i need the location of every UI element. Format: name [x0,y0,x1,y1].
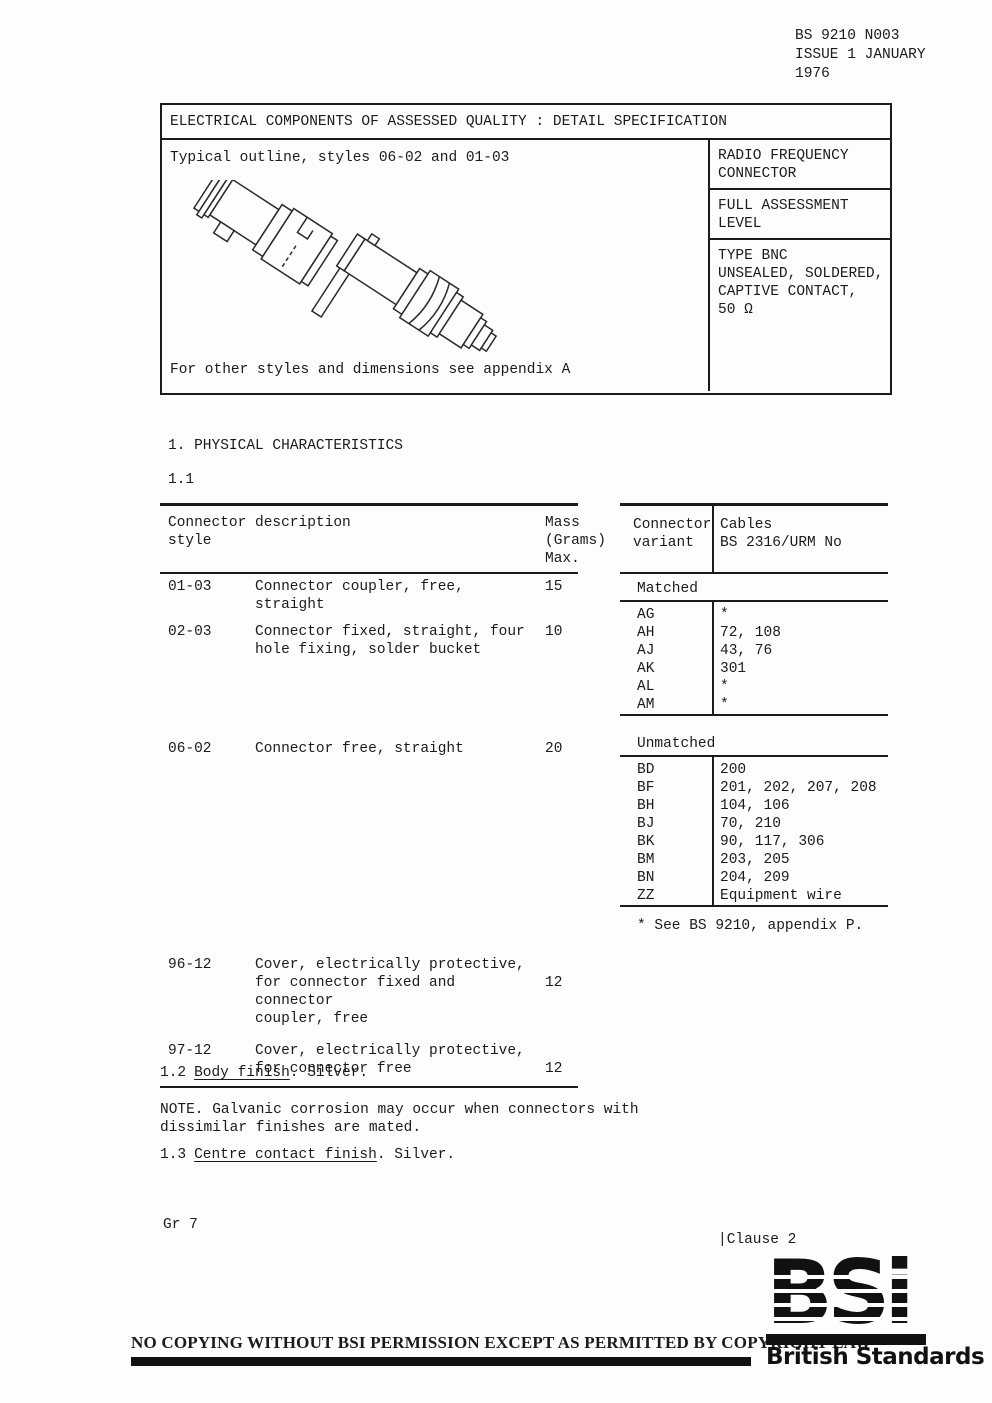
cable-row: AM * [620,696,888,714]
cable-table-footnote: * See BS 9210, appendix P. [620,917,888,935]
rule [620,572,888,574]
unmatched-rows: BD 200 BF 201, 202, 207, 208 BH 104, 106… [620,757,888,905]
variant-cell: AL [620,678,712,696]
col-header-connector-style: Connector style [168,514,255,568]
cable-row: ZZ Equipment wire [620,887,888,905]
variant-cell: BN [620,869,712,887]
cables-cell: 43, 76 [712,642,888,660]
cable-row: BJ 70, 210 [620,815,888,833]
variant-cell: BD [620,761,712,779]
cables-cell: 72, 108 [712,624,888,642]
variant-cell: AM [620,696,712,714]
bsi-logo-caption: British Standards [766,1348,948,1366]
spec-title-row: ELECTRICAL COMPONENTS OF ASSESSED QUALIT… [162,105,890,140]
doc-reference-block: BS 9210 N003 ISSUE 1 JANUARY 1976 [795,27,926,84]
mass-cell: 10 [541,623,578,659]
connector-style-cell: 02-03 [168,623,255,659]
clause-centre-contact-finish: 1.3Centre contact finish. Silver. [160,1146,455,1164]
rule [620,714,888,716]
description-cell: Connector coupler, free, straight [255,578,541,614]
doc-issue: ISSUE 1 JANUARY [795,46,926,65]
copyright-bar [131,1357,751,1366]
clause-value: . Silver. [377,1147,455,1163]
cables-cell: Equipment wire [712,887,888,905]
doc-year: 1976 [795,65,926,84]
side-cell-connector-family: RADIO FREQUENCY CONNECTOR [710,140,890,190]
mass-cell: 12 [541,974,578,1028]
cable-row: BM 203, 205 [620,851,888,869]
cables-cell: * [712,678,888,696]
description-cell: Connector fixed, straight, four hole fix… [255,623,541,659]
subsection-number: 1.1 [168,471,194,489]
mass-table: Connector style description Mass (Grams)… [160,503,578,1088]
variant-cell: AJ [620,642,712,660]
connector-style-cell: 06-02 [168,740,255,758]
cables-cell: 203, 205 [712,851,888,869]
cables-cell: 70, 210 [712,815,888,833]
side-cell-line: UNSEALED, SOLDERED, [718,265,890,283]
mass-cell: 15 [541,578,578,614]
section-heading: 1. PHYSICAL CHARACTERISTICS [168,437,403,455]
side-cell-line: RADIO FREQUENCY [718,147,890,165]
col-header-connector-variant: Connector variant [620,516,712,572]
description-cell: Cover, electrically protective, for conn… [255,956,541,1028]
variant-cell: AG [620,606,712,624]
cable-row: AJ 43, 76 [620,642,888,660]
col-header-description: description [255,514,541,568]
variant-cell: BJ [620,815,712,833]
cable-row: BD 200 [620,761,888,779]
cable-row: BK 90, 117, 306 [620,833,888,851]
description-cell: Connector free, straight [255,740,541,758]
cable-variant-table: Connector variant Cables BS 2316/URM No … [620,503,888,935]
unmatched-band-label: Unmatched [637,735,888,753]
clause-label: Centre contact finish [194,1147,377,1163]
bsi-logo: BSi British Standards [766,1259,948,1366]
mass-table-row: 96-12 Cover, electrically protective, fo… [160,956,578,1028]
cables-cell: 301 [712,660,888,678]
scanned-spec-page: BS 9210 N003 ISSUE 1 JANUARY 1976 ELECTR… [0,0,992,1403]
variant-cell: BK [620,833,712,851]
mass-table-row: 02-03 Connector fixed, straight, four ho… [160,623,578,659]
clause-body-finish: 1.2Body finish. Silver. [160,1064,368,1082]
connector-outline-drawing [162,180,708,390]
clause-value: . Silver. [290,1065,368,1081]
col-header-mass: Mass (Grams) Max. [541,514,606,568]
price-group: Gr 7 [163,1216,198,1234]
side-cell-assessment-level: FULL ASSESSMENT LEVEL [710,190,890,240]
side-cell-line: LEVEL [718,215,890,233]
side-cell-line: 50 Ω [718,301,890,319]
side-cell-line: FULL ASSESSMENT [718,197,890,215]
clause-label: Body finish [194,1065,290,1081]
mass-table-header: Connector style description Mass (Grams)… [160,506,578,568]
cable-table-header: Connector variant Cables BS 2316/URM No [620,506,888,572]
cable-row: BN 204, 209 [620,869,888,887]
mass-table-row: 06-02 Connector free, straight 20 [160,740,578,758]
cable-row: AH 72, 108 [620,624,888,642]
cable-row: AL * [620,678,888,696]
mass-cell: 12 [541,1060,578,1078]
side-cell-type: TYPE BNC UNSEALED, SOLDERED, CAPTIVE CON… [710,240,890,391]
cables-cell: 200 [712,761,888,779]
cables-cell: 104, 106 [712,797,888,815]
col-header-cables: Cables BS 2316/URM No [712,516,888,572]
cable-row: BF 201, 202, 207, 208 [620,779,888,797]
cables-cell: * [712,606,888,624]
mass-table-row: 01-03 Connector coupler, free, straight … [160,578,578,614]
cables-cell: 204, 209 [712,869,888,887]
clause-number: 1.2 [160,1065,186,1081]
variant-cell: ZZ [620,887,712,905]
mass-cell: 20 [541,740,578,758]
spec-header-table: ELECTRICAL COMPONENTS OF ASSESSED QUALIT… [160,103,892,395]
connector-style-cell: 01-03 [168,578,255,614]
galvanic-corrosion-note: NOTE. Galvanic corrosion may occur when … [160,1101,639,1137]
side-cell-line: CONNECTOR [718,165,890,183]
variant-cell: AH [620,624,712,642]
cables-cell: 90, 117, 306 [712,833,888,851]
rule [160,572,578,574]
connector-style-cell: 96-12 [168,956,255,1028]
outline-cell: Typical outline, styles 06-02 and 01-03 [162,140,710,391]
spec-title: ELECTRICAL COMPONENTS OF ASSESSED QUALIT… [170,114,727,130]
cables-cell: 201, 202, 207, 208 [712,779,888,797]
copyright-notice: NO COPYING WITHOUT BSI PERMISSION EXCEPT… [131,1334,751,1352]
variant-cell: BM [620,851,712,869]
bsi-logo-stripes [766,1265,948,1327]
side-cell-line: TYPE BNC [718,247,890,265]
rule [620,905,888,907]
outline-caption: Typical outline, styles 06-02 and 01-03 [162,140,708,167]
variant-cell: BH [620,797,712,815]
matched-band-label: Matched [637,580,888,598]
clause-number: 1.3 [160,1147,186,1163]
cable-row: AG * [620,606,888,624]
cables-cell: * [712,696,888,714]
variant-cell: AK [620,660,712,678]
cable-row: BH 104, 106 [620,797,888,815]
side-cell-line: CAPTIVE CONTACT, [718,283,890,301]
rule [160,1086,578,1088]
outline-note: For other styles and dimensions see appe… [170,361,570,379]
cable-row: AK 301 [620,660,888,678]
doc-number: BS 9210 N003 [795,27,926,46]
matched-rows: AG * AH 72, 108 AJ 43, 76 AK 301 AL * AM… [620,602,888,714]
variant-cell: BF [620,779,712,797]
